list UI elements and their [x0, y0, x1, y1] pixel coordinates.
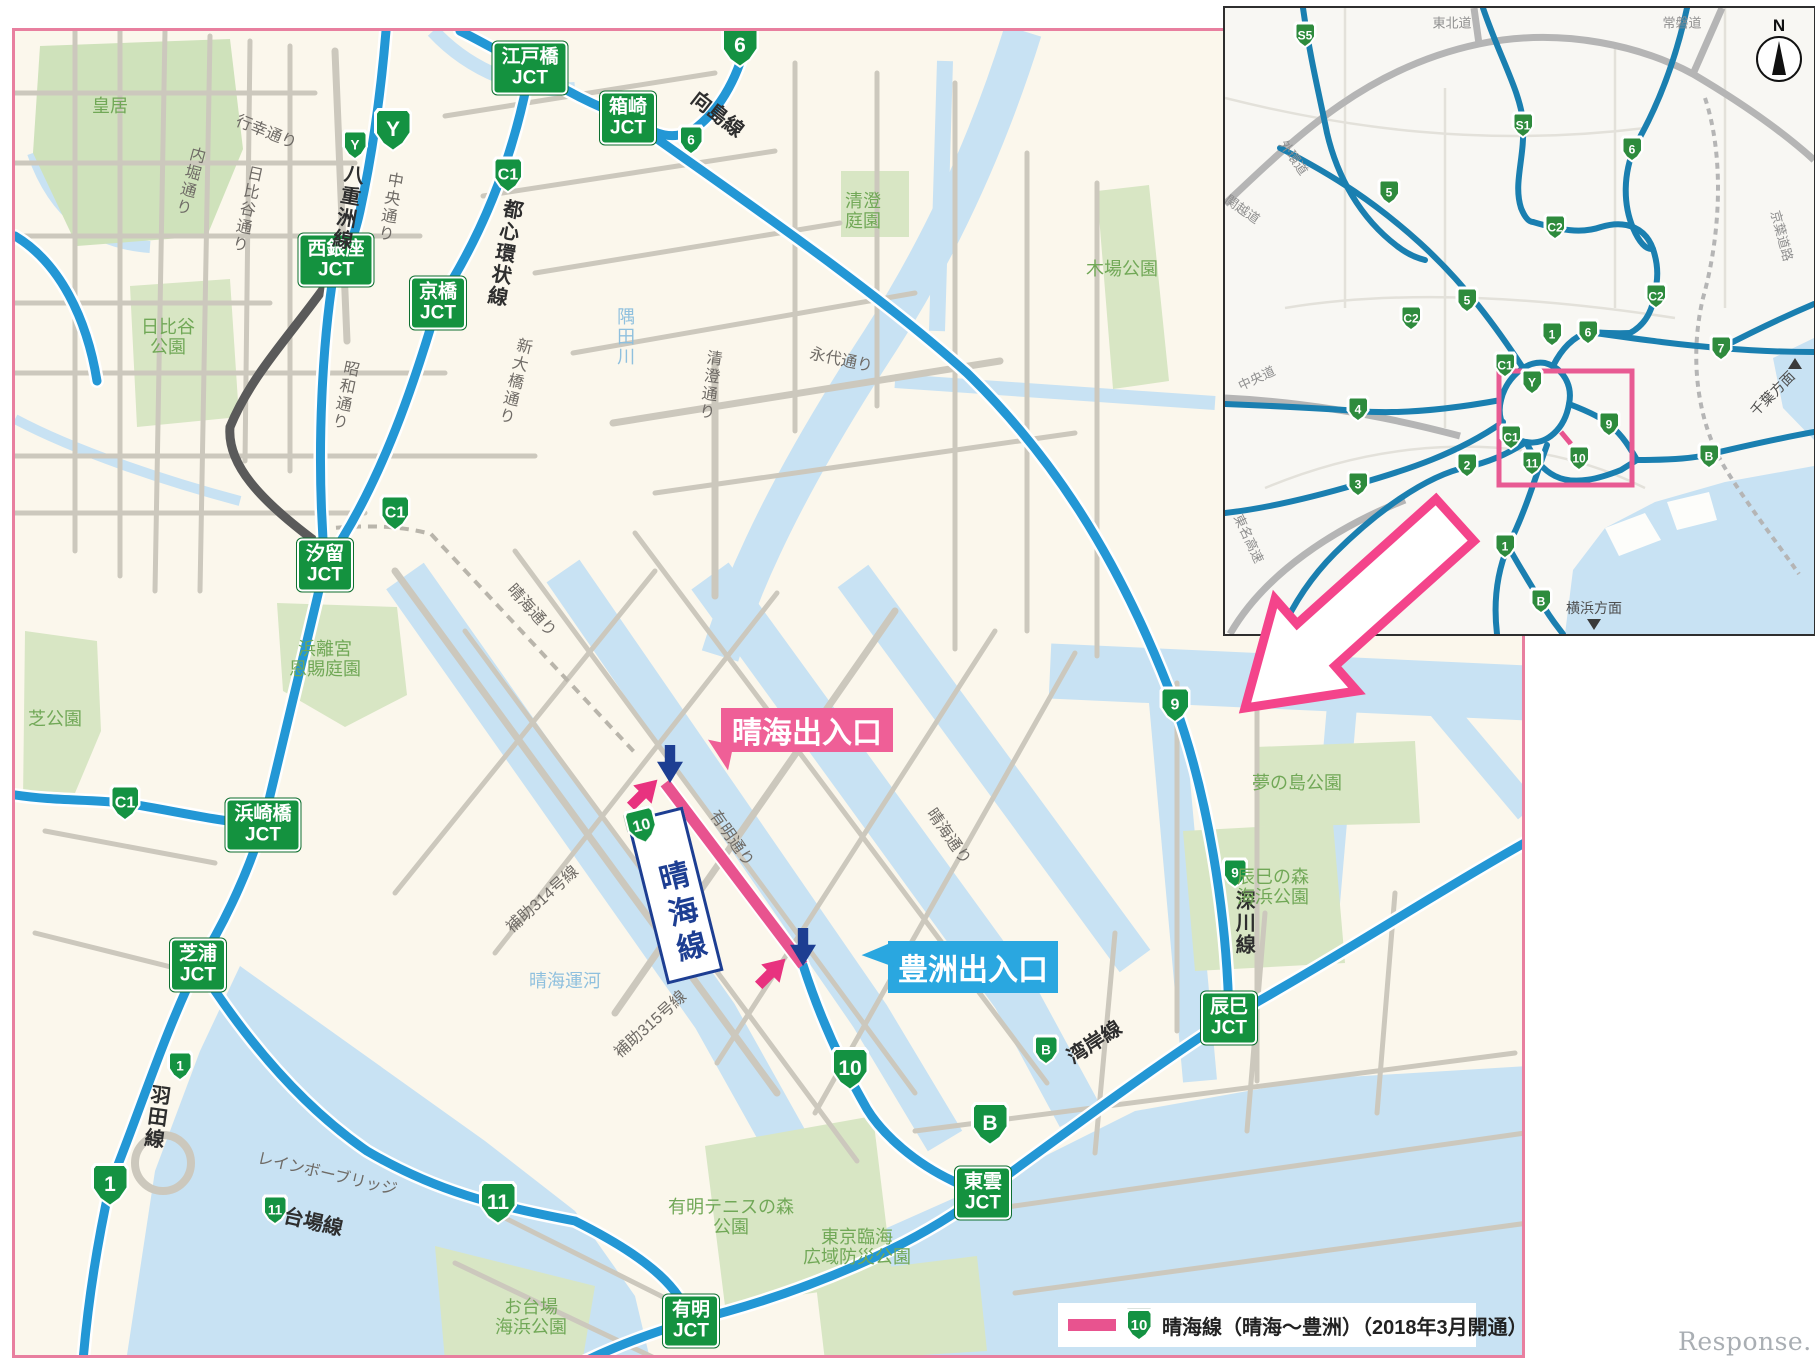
- junction-box-芝浦: 芝浦 JCT: [170, 938, 226, 991]
- inset-graphics: [1225, 8, 1814, 634]
- shield-outer: 7: [1710, 335, 1733, 362]
- shield-inner: Y: [1523, 371, 1541, 393]
- shield-inner: S1: [1514, 114, 1532, 136]
- route-shield-6: 6: [1577, 319, 1600, 346]
- shield-inner: 6: [1579, 321, 1597, 343]
- route-shield-6: 6: [1621, 136, 1644, 163]
- shield-inner: Y: [345, 132, 366, 158]
- route-shield-1: 1: [1494, 533, 1517, 560]
- canal-nw: [15, 419, 240, 501]
- shield-inner: 1: [170, 1053, 191, 1079]
- shield-outer: Y: [374, 108, 412, 152]
- shield-inner: 10: [1570, 447, 1588, 469]
- shield-outer: 6: [678, 125, 704, 156]
- shield-inner: C2: [1546, 216, 1564, 238]
- sumida-river: [720, 31, 1023, 656]
- route-shield-6: 6: [721, 28, 759, 68]
- legend-text: 晴海線（晴海～豊洲）（2018年3月開通）: [1162, 1311, 1528, 1340]
- shield-outer: S5: [1294, 22, 1317, 49]
- shield-inner: 7: [1712, 337, 1730, 359]
- map-figure: Y6Y6C1C1C19911111110BB江戸橋 JCT箱崎 JCT西銀座 J…: [0, 0, 1815, 1370]
- shield-inner: C1: [1496, 354, 1514, 376]
- route-shield-1: 1: [91, 1163, 129, 1207]
- route-shield-1: 1: [167, 1051, 193, 1082]
- shield-inner: 11: [482, 1184, 515, 1223]
- junction-box-辰巳: 辰巳 JCT: [1201, 991, 1257, 1044]
- direction-arrow-icon: [1587, 619, 1601, 630]
- shield-outer: C1: [493, 157, 524, 194]
- shield-outer: B: [971, 1102, 1009, 1146]
- route-shield-2: 2: [1456, 452, 1479, 479]
- route-shield-C1: C1: [493, 157, 524, 194]
- shield-outer: 10: [1568, 445, 1591, 472]
- junction-box-西銀座: 西銀座 JCT: [298, 233, 373, 286]
- route-shield-11: 11: [1521, 450, 1544, 477]
- shield-inner: B: [974, 1105, 1007, 1144]
- shield-inner: C1: [112, 787, 138, 819]
- shield-outer: 11: [1521, 450, 1544, 477]
- callout-toyosu-entrance: 豊洲出入口: [888, 941, 1058, 993]
- route-shield-11: 11: [262, 1195, 288, 1226]
- direction-arrow-icon: [1788, 358, 1802, 369]
- route-shield-1: 1: [1541, 321, 1564, 348]
- inset-harumi-segment: [1561, 432, 1571, 444]
- shield-inner: C1: [1502, 426, 1520, 448]
- route-shield-10: 10: [831, 1047, 869, 1091]
- shield-inner: 5: [1458, 289, 1476, 311]
- shield-outer: C2: [1400, 305, 1423, 332]
- shield-outer: 9: [1598, 411, 1621, 438]
- watermark: Response.: [1678, 1327, 1812, 1356]
- shield-inner: B: [1036, 1037, 1057, 1063]
- route-shield-Y: Y: [342, 130, 368, 161]
- shield-inner: 1: [1496, 535, 1514, 557]
- route-shield-5: 5: [1456, 287, 1479, 314]
- shield-inner: 3: [1349, 473, 1367, 495]
- route-shield-9: 9: [1598, 411, 1621, 438]
- shield-inner: 6: [681, 127, 702, 153]
- route-shield-B: B: [971, 1102, 1009, 1146]
- route-shield-C1: C1: [1494, 352, 1517, 379]
- callout-tail: [703, 740, 734, 771]
- shield-outer: C2: [1544, 214, 1567, 241]
- route-shield-9: 9: [1222, 858, 1248, 889]
- route-shield-3: 3: [1347, 471, 1370, 498]
- yumenoshima-park-area: [1255, 741, 1420, 827]
- legend-line-swatch: [1068, 1319, 1116, 1331]
- junction-box-東雲: 東雲 JCT: [955, 1166, 1011, 1219]
- shield-inner: 9: [1225, 860, 1246, 886]
- route-shield-S1: S1: [1512, 112, 1535, 139]
- shield-inner: 10: [834, 1050, 867, 1089]
- shield-outer: 11: [479, 1181, 517, 1225]
- route-shield-C2: C2: [1544, 214, 1567, 241]
- shield-outer: C1: [380, 495, 411, 532]
- shield-inner: 5: [1380, 181, 1398, 203]
- shield-outer: 1: [91, 1163, 129, 1207]
- shield-outer: 3: [1347, 471, 1370, 498]
- shield-inner: 1: [1543, 323, 1561, 345]
- shield-inner: C2: [1647, 285, 1665, 307]
- junction-box-箱崎: 箱崎 JCT: [600, 91, 656, 144]
- shield-outer: 5: [1378, 179, 1401, 206]
- route-shield-5: 5: [1378, 179, 1401, 206]
- shield-outer: 5: [1456, 287, 1479, 314]
- route-shield-7: 7: [1710, 335, 1733, 362]
- oyokogawa: [937, 61, 945, 331]
- route-shield-S5: S5: [1294, 22, 1317, 49]
- callout-harumi-entrance: 晴海出入口: [721, 708, 893, 752]
- shield-inner: B: [1532, 590, 1550, 612]
- shield-outer: 9: [1160, 687, 1191, 724]
- shield-outer: B: [1698, 443, 1721, 470]
- route-shield-11: 11: [479, 1181, 517, 1225]
- inset-bay: [1565, 466, 1814, 634]
- shield-inner: 9: [1600, 413, 1618, 435]
- shield-inner: 4: [1349, 398, 1367, 420]
- shield-outer: 6: [1621, 136, 1644, 163]
- route-shield-Y: Y: [1521, 369, 1544, 396]
- shield-outer: C1: [110, 785, 141, 822]
- route-shield-C1: C1: [110, 785, 141, 822]
- shield-inner: Y: [377, 111, 410, 150]
- shield-outer: 1: [1494, 533, 1517, 560]
- route-shield-B: B: [1698, 443, 1721, 470]
- compass-n-label: N: [1756, 16, 1802, 36]
- kiba-park-area: [1097, 185, 1169, 389]
- junction-box-江戸橋: 江戸橋 JCT: [492, 41, 567, 94]
- shield-outer: Y: [342, 130, 368, 161]
- compass-icon: N: [1756, 16, 1802, 82]
- shield-inner: C2: [1402, 307, 1420, 329]
- shield-inner: C1: [495, 159, 521, 191]
- shield-outer: C1: [1494, 352, 1517, 379]
- shield-inner: 6: [724, 28, 757, 66]
- inset-overview-map: S5S165C2C25C2167C1Y9C11011243B1B東北道常磐道外環…: [1223, 6, 1815, 636]
- callout-tail: [860, 943, 893, 971]
- junction-box-京橋: 京橋 JCT: [410, 276, 466, 329]
- shield-outer: 1: [1541, 321, 1564, 348]
- junction-box-汐留: 汐留 JCT: [297, 538, 353, 591]
- sendaibori: [895, 381, 1215, 403]
- shield-outer: 2: [1456, 452, 1479, 479]
- route-shield-6: 6: [678, 125, 704, 156]
- shield-outer: 4: [1347, 396, 1370, 423]
- route-shield-B: B: [1530, 588, 1553, 615]
- shield-inner: 9: [1162, 689, 1188, 721]
- shield-inner: C1: [382, 497, 408, 529]
- shield-inner: B: [1700, 445, 1718, 467]
- route-shield-Y: Y: [374, 108, 412, 152]
- shield-outer: Y: [1521, 369, 1544, 396]
- shield-outer: 6: [1577, 319, 1600, 346]
- route-shield-C2: C2: [1645, 283, 1668, 310]
- route-shield-9: 9: [1160, 687, 1191, 724]
- shield-outer: 10: [831, 1047, 869, 1091]
- shiba-park-area: [23, 631, 101, 801]
- planned-road-dotted: [320, 526, 431, 534]
- shield-inner: S5: [1296, 24, 1314, 46]
- shield-outer: 1: [167, 1051, 193, 1082]
- route-shield-4: 4: [1347, 396, 1370, 423]
- route-shield-10: 10: [1568, 445, 1591, 472]
- shield-outer: B: [1033, 1035, 1059, 1066]
- shield-outer: C2: [1645, 283, 1668, 310]
- shield-outer: 9: [1222, 858, 1248, 889]
- shield-outer: 6: [721, 28, 759, 68]
- tatsumi-channel: [1050, 671, 1525, 693]
- shield-inner: 1: [94, 1166, 127, 1205]
- shield-outer: 11: [262, 1195, 288, 1226]
- junction-box-浜崎橋: 浜崎橋 JCT: [225, 798, 300, 851]
- legend: 10 晴海線（晴海～豊洲）（2018年3月開通）: [1058, 1303, 1476, 1347]
- route-shield-B: B: [1033, 1035, 1059, 1066]
- shield-inner: 11: [1523, 452, 1541, 474]
- shield-inner: 6: [1623, 138, 1641, 160]
- junction-box-有明: 有明 JCT: [663, 1294, 719, 1347]
- shield-inner: 2: [1458, 454, 1476, 476]
- legend-route-shield: 10: [1125, 1309, 1153, 1342]
- route-shield-C1: C1: [380, 495, 411, 532]
- shield-inner: 11: [265, 1197, 286, 1223]
- shield-inner: 10: [625, 807, 658, 844]
- route-shield-C2: C2: [1400, 305, 1423, 332]
- shield-outer: C1: [1500, 424, 1523, 451]
- shield-outer: B: [1530, 588, 1553, 615]
- compass-needle-icon: [1772, 41, 1786, 75]
- shield-outer: S1: [1512, 112, 1535, 139]
- route-shield-C1: C1: [1500, 424, 1523, 451]
